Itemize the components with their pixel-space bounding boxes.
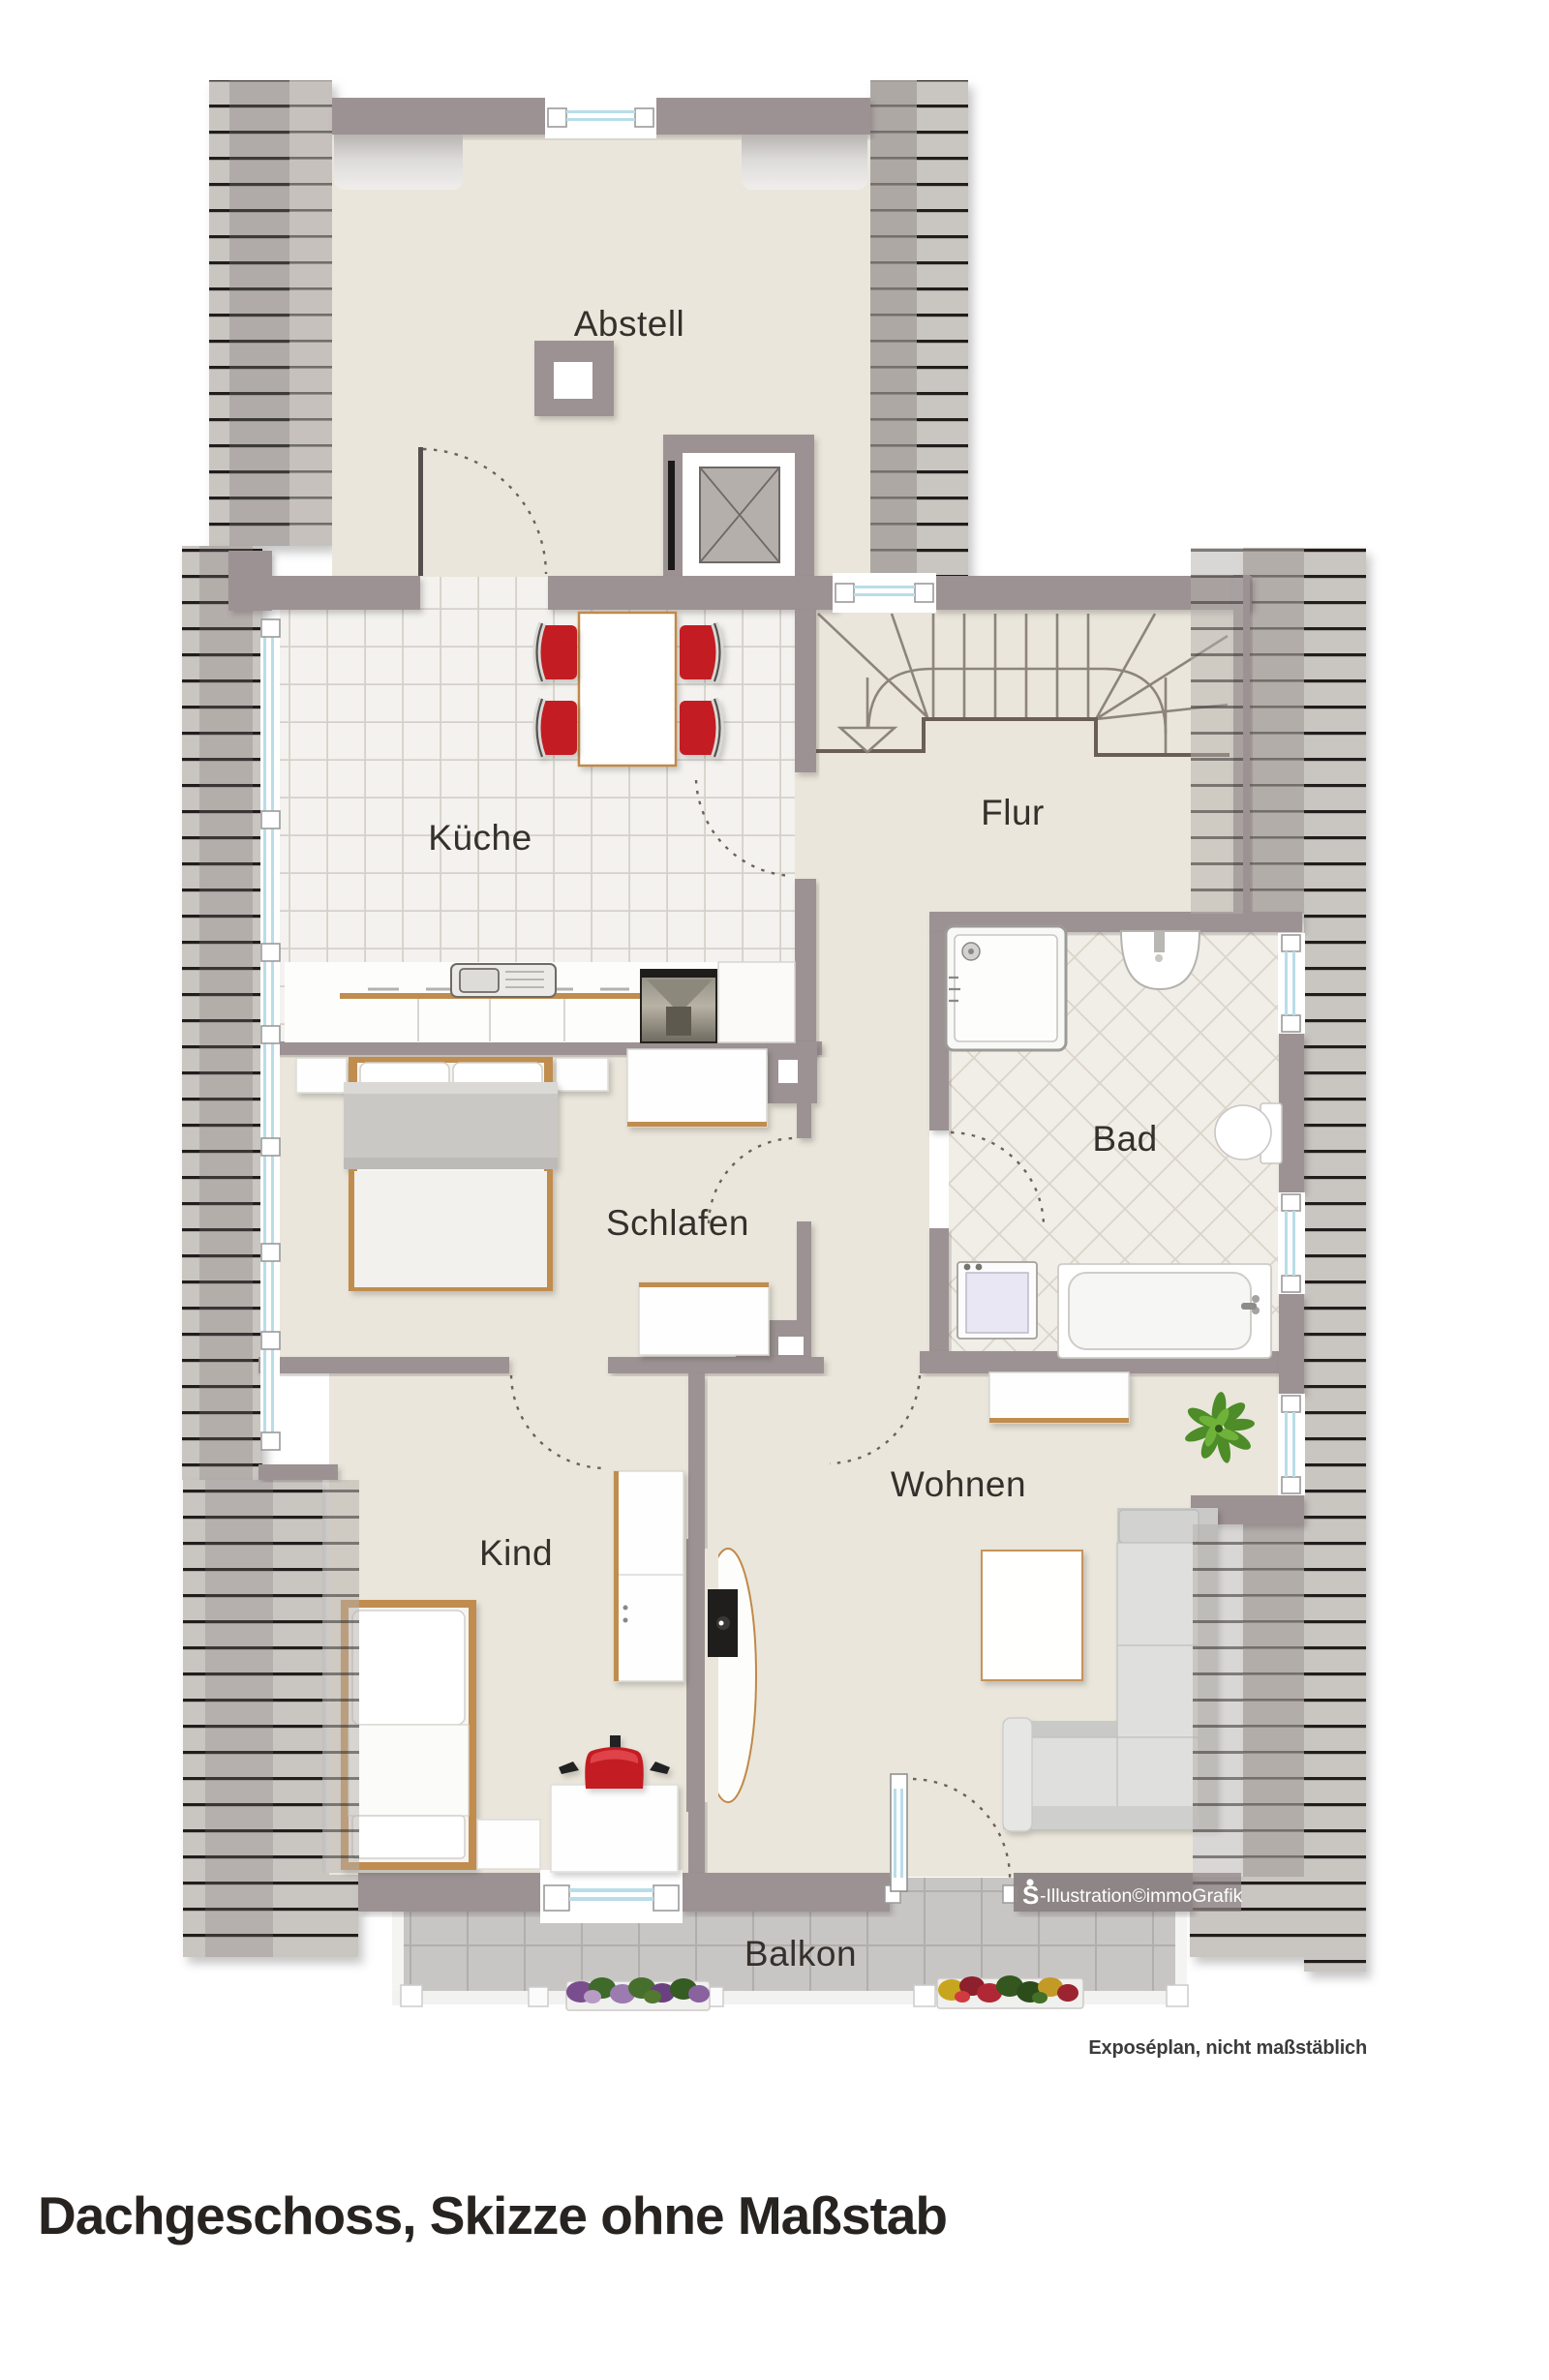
svg-text:Exposéplan, nicht maßstäblich: Exposéplan, nicht maßstäblich <box>1088 2037 1367 2059</box>
svg-text:Schlafen: Schlafen <box>606 1203 749 1243</box>
svg-text:Kind: Kind <box>479 1533 553 1573</box>
svg-text:Wohnen: Wohnen <box>891 1464 1026 1504</box>
svg-text:Dachgeschoss, Skizze ohne Maßs: Dachgeschoss, Skizze ohne Maßstab <box>38 2185 947 2245</box>
svg-text:Balkon: Balkon <box>744 1934 857 1973</box>
svg-text:Küche: Küche <box>428 818 532 858</box>
svg-text:-Illustration©immoGrafik: -Illustration©immoGrafik <box>1040 1885 1243 1907</box>
svg-text:S: S <box>1022 1881 1039 1910</box>
svg-text:Abstell: Abstell <box>574 304 685 344</box>
svg-text:Flur: Flur <box>981 793 1045 832</box>
svg-text:Bad: Bad <box>1092 1119 1157 1159</box>
